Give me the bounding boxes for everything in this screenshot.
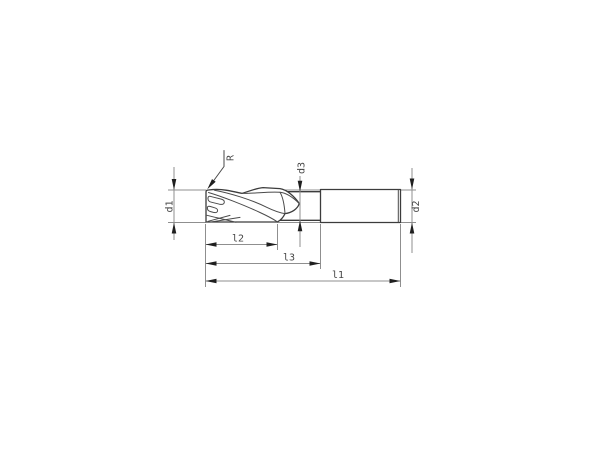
drawing-canvas: R d1 d3 d2 l2 l3 l1 bbox=[0, 0, 600, 450]
arrow-d1-bottom bbox=[172, 223, 177, 234]
arrow-l1-left bbox=[206, 279, 217, 284]
arrow-radius-leader bbox=[207, 179, 215, 189]
label-corner-radius: R bbox=[226, 154, 237, 161]
label-cutting-diameter-d1: d1 bbox=[165, 200, 176, 212]
label-neck-diameter-d3: d3 bbox=[297, 162, 308, 174]
cutter-head bbox=[206, 188, 299, 223]
arrow-d3-bottom bbox=[298, 220, 303, 231]
arrow-l1-right bbox=[390, 279, 401, 284]
label-shank-diameter-d2: d2 bbox=[411, 200, 422, 212]
arrow-l2-right bbox=[267, 242, 278, 247]
end-mill-dimension-drawing: R d1 d3 d2 l2 l3 l1 bbox=[0, 0, 600, 450]
label-flute-length-l2: l2 bbox=[232, 234, 244, 245]
arrow-d2-bottom bbox=[410, 223, 415, 234]
arrow-d2-top bbox=[410, 179, 415, 190]
label-overall-length-l1: l1 bbox=[332, 270, 344, 281]
radius-leader bbox=[207, 151, 224, 190]
shank-section bbox=[321, 190, 401, 223]
label-reach-length-l3: l3 bbox=[283, 253, 295, 264]
arrow-l3-left bbox=[206, 261, 217, 266]
shank-outline bbox=[321, 190, 401, 223]
arrow-l2-left bbox=[206, 242, 217, 247]
arrow-d1-top bbox=[172, 179, 177, 190]
arrow-l3-right bbox=[310, 261, 321, 266]
